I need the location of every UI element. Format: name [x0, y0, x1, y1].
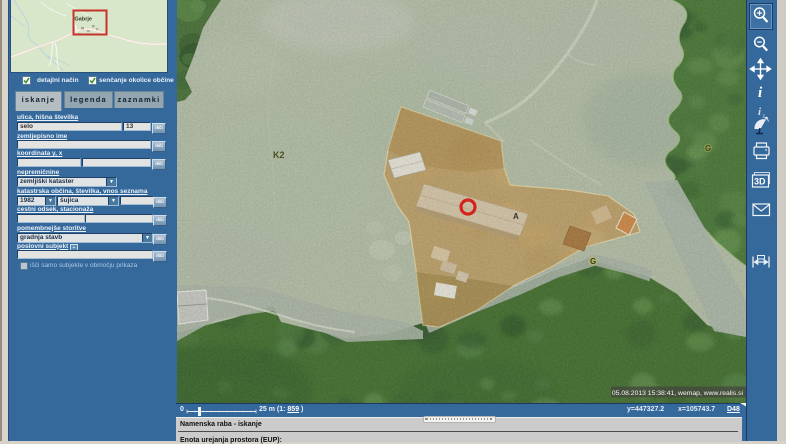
- svg-text:i: i: [758, 106, 762, 118]
- svg-text:05.08.2013 15:38:41, wemap, ww: 05.08.2013 15:38:41, wemap, www.realis.s…: [612, 390, 744, 397]
- svg-text:3D: 3D: [754, 177, 766, 187]
- svg-text:z: z: [762, 114, 766, 120]
- svg-text:i: i: [758, 85, 763, 101]
- svg-text:Gabrje: Gabrje: [75, 17, 92, 23]
